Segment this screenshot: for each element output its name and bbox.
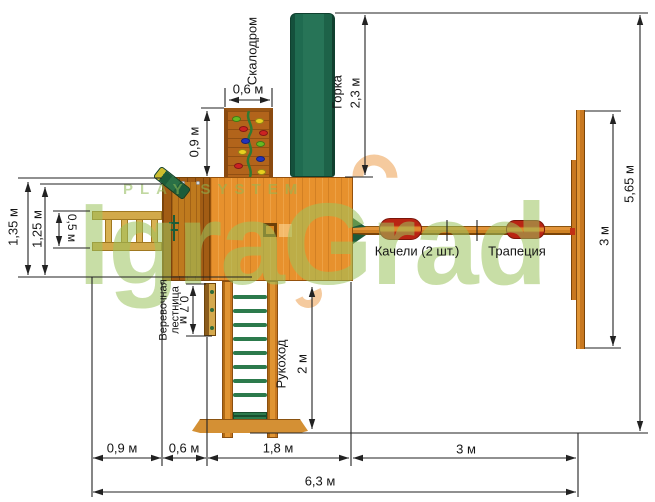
climbing-hold	[232, 116, 241, 122]
dim-label-bottom-3: 1,8 м	[263, 441, 294, 456]
platform-roof	[210, 177, 353, 281]
dim-label-bottom-1: 0,9 м	[107, 441, 138, 456]
ladder-rung	[105, 219, 112, 243]
ladder-rung	[151, 219, 158, 243]
a-frame-leg	[353, 218, 366, 228]
climbing-hold	[255, 118, 264, 124]
climbing-hold	[256, 156, 265, 162]
monkey-bars-rung	[233, 295, 267, 299]
rope-ladder	[204, 283, 216, 336]
dim-label-rope-ladder: 0,7 м	[177, 296, 191, 324]
rope-ladder-ring	[210, 308, 214, 312]
beam-connector	[570, 228, 575, 235]
swing-seat	[379, 218, 422, 240]
dim-label-climbing-wall-offset: 0,9 м	[187, 127, 202, 158]
playground-plan-diagram: PLAY SYSTEM IgraGrad	[0, 0, 655, 502]
climbing-wall	[224, 108, 273, 177]
climbing-hold	[259, 130, 268, 136]
dim-label-total-width: 6,3 м	[305, 474, 336, 489]
climbing-hold	[256, 141, 265, 147]
dim-label-total-depth: 5,65 м	[622, 165, 637, 203]
climbing-hold	[239, 126, 248, 132]
dim-label-depth-outer: 1,35 м	[6, 208, 21, 246]
trapeze-bar	[506, 220, 545, 239]
rope-ladder-ring	[210, 326, 214, 330]
a-frame-leg	[353, 234, 366, 244]
monkey-bars-rung	[233, 365, 267, 369]
monkey-bars-rail-left	[222, 281, 233, 438]
compass-emblem	[169, 215, 179, 241]
watermark-swing-arc	[290, 276, 326, 312]
dim-label-slide-length: 2,3 м	[348, 78, 363, 109]
dim-label-climbing-wall-width: 0,6 м	[233, 82, 264, 97]
rope-ladder-ring	[210, 290, 214, 294]
climbing-hold	[257, 169, 266, 175]
monkey-bars-rung	[233, 337, 267, 341]
monkey-bars-crossbeam	[192, 419, 308, 433]
label-climbing-wall: Скалодром	[245, 17, 260, 85]
access-ladder	[92, 211, 162, 251]
roof-vent-highlight	[279, 224, 292, 237]
dim-label-ladder-width: 0,5 м	[65, 214, 79, 242]
label-swings: Качели (2 шт.)	[375, 244, 460, 259]
climbing-hold	[241, 138, 250, 144]
monkey-bars-rung	[233, 379, 267, 383]
dim-label-frame-span: 3 м	[597, 226, 612, 246]
label-slide: Горка	[330, 75, 345, 109]
ladder-rung	[121, 219, 128, 243]
slide	[290, 13, 335, 177]
dim-label-bottom-2: 0,6 м	[169, 441, 200, 456]
dim-label-bottom-4: 3 м	[456, 442, 476, 457]
post-top	[196, 181, 200, 185]
roof-vent	[263, 223, 277, 237]
label-monkey-bars: Рукоход	[274, 340, 289, 389]
ladder-rung	[136, 219, 143, 243]
swing-frame-end-beam	[576, 110, 585, 349]
dim-label-monkey-bars: 2 м	[295, 354, 310, 374]
climbing-hold	[234, 163, 243, 169]
monkey-bars-rung	[233, 351, 267, 355]
ladder-rail	[92, 242, 162, 251]
label-trapeze: Трапеция	[488, 244, 546, 259]
dim-label-depth-inner: 1,25 м	[30, 210, 45, 248]
monkey-bars-rung	[233, 323, 267, 327]
monkey-bars-rung	[233, 393, 267, 397]
monkey-bars-rung	[233, 309, 267, 313]
climbing-hold	[238, 149, 247, 155]
